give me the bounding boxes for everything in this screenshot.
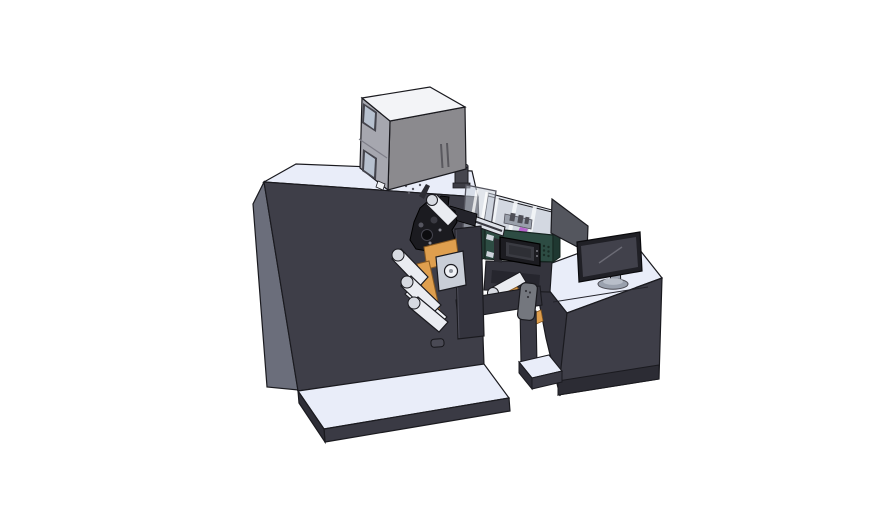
mechanism-hub [431,217,438,224]
unwind-roller-1-cap [392,249,404,261]
bearing-panel-axle [449,269,453,273]
mechanism-gear [422,230,433,241]
mechanism-speck1 [439,229,442,232]
unwind-roller-2-cap [401,276,413,288]
monitor-stand-base-top [603,278,623,285]
mechanism-speck2 [429,242,432,245]
roller-top-cap [427,195,438,206]
sensor-unit [517,282,538,321]
cad-render-stage [0,0,888,522]
machine-render [0,0,888,522]
unwind-roller-3-cap [408,297,420,309]
mechanism-pin [419,223,424,228]
cabinet-handle-notch [431,339,445,348]
